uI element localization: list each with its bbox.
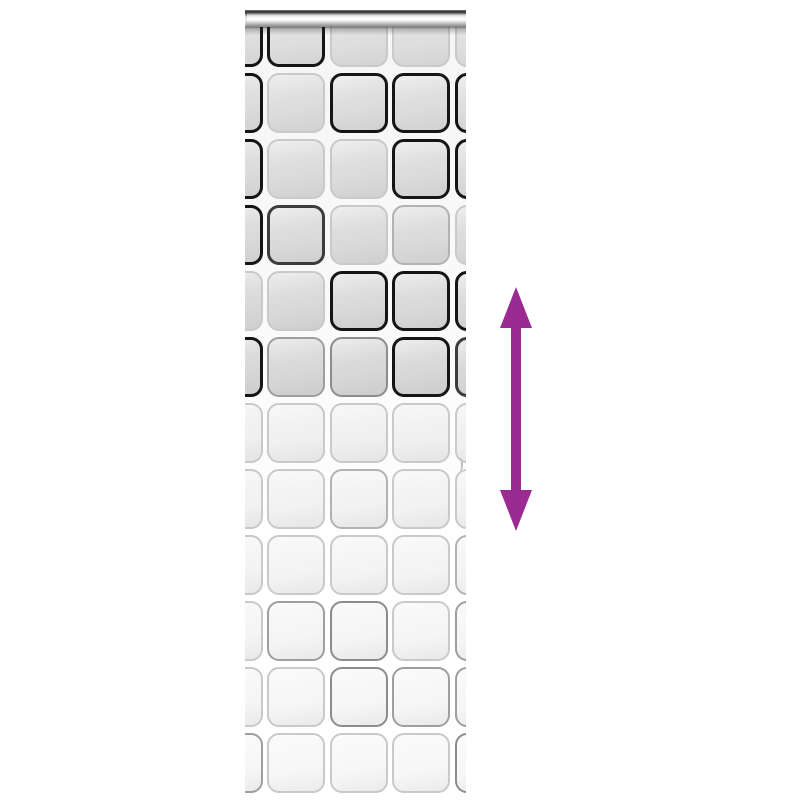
pattern-square xyxy=(392,733,450,793)
pattern-square xyxy=(330,601,388,661)
pattern-square xyxy=(267,535,325,595)
pattern-square xyxy=(245,403,263,463)
pattern-square xyxy=(455,73,467,133)
pattern-square xyxy=(455,733,467,793)
pattern-square xyxy=(392,535,450,595)
pattern-square xyxy=(267,733,325,793)
pattern-square xyxy=(392,205,450,265)
pattern-square xyxy=(267,205,325,265)
pattern-square xyxy=(245,139,263,199)
pattern-square xyxy=(392,469,450,529)
pattern-square xyxy=(455,139,467,199)
pattern-square xyxy=(330,535,388,595)
pattern-square xyxy=(330,139,388,199)
pattern-square xyxy=(245,73,263,133)
pattern-square xyxy=(245,271,263,331)
pattern-square xyxy=(267,271,325,331)
pattern-square xyxy=(245,601,263,661)
pattern-square xyxy=(245,469,263,529)
pattern-square xyxy=(330,73,388,133)
pattern-square xyxy=(245,535,263,595)
pattern-square xyxy=(267,667,325,727)
pattern-square xyxy=(455,337,467,397)
pattern-square xyxy=(455,667,467,727)
pattern-square xyxy=(455,271,467,331)
pattern-square xyxy=(330,403,388,463)
product-image xyxy=(0,0,800,800)
pattern-square xyxy=(245,205,263,265)
pattern-square xyxy=(392,601,450,661)
pattern-square xyxy=(392,403,450,463)
pattern-square xyxy=(455,403,467,463)
pattern-square xyxy=(267,403,325,463)
pattern-square xyxy=(245,337,263,397)
pattern-square xyxy=(267,469,325,529)
pattern-square xyxy=(392,271,450,331)
pattern-square xyxy=(330,469,388,529)
roller-bar-left-cap xyxy=(245,10,247,29)
pattern-square xyxy=(330,733,388,793)
pattern-square xyxy=(330,271,388,331)
pattern-square xyxy=(267,337,325,397)
pattern-square xyxy=(455,205,467,265)
blind-fabric-pattern xyxy=(245,10,466,800)
pattern-square xyxy=(455,535,467,595)
roller-blind xyxy=(245,10,466,800)
pattern-square xyxy=(245,667,263,727)
pattern-square xyxy=(392,139,450,199)
pattern-square xyxy=(455,469,467,529)
pattern-square xyxy=(455,601,467,661)
pattern-square xyxy=(330,667,388,727)
pattern-square xyxy=(392,337,450,397)
roller-bar xyxy=(245,10,466,27)
pattern-square xyxy=(267,601,325,661)
pattern-square xyxy=(245,733,263,793)
pattern-square xyxy=(267,139,325,199)
pattern-square xyxy=(392,667,450,727)
pattern-square xyxy=(267,73,325,133)
pattern-square xyxy=(330,337,388,397)
vertical-double-arrow-shape xyxy=(500,287,532,531)
fabric-edge-notch xyxy=(457,458,463,471)
vertical-double-arrow-icon xyxy=(500,287,532,531)
pattern-square xyxy=(330,205,388,265)
pattern-square xyxy=(392,73,450,133)
